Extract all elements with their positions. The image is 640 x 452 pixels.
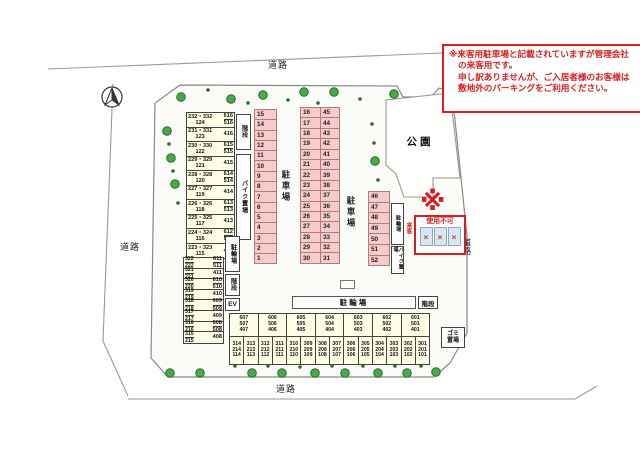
tree-icon xyxy=(432,368,441,377)
left-building-lower: 3222226115113212214113202206105103192194… xyxy=(183,257,224,344)
unit-number: 118 xyxy=(196,207,205,213)
motorbike-area-label: バイク置場 xyxy=(392,247,402,273)
tree-icon xyxy=(341,369,350,378)
site-plan: 道路 道路 道路 道路 ※来客用駐車場と記載されていますが管理会社 の来客用です… xyxy=(0,0,640,452)
unit-number: 407 xyxy=(239,328,248,334)
unit-number: 117 xyxy=(196,221,205,227)
unit-row: 230・330122615515 xyxy=(187,142,234,157)
unit-number: 406 xyxy=(268,328,277,334)
tree-icon xyxy=(196,369,205,378)
unit-number: 515 xyxy=(224,149,233,155)
unit-number: 321 xyxy=(185,267,194,274)
unit-number: 514 xyxy=(224,178,233,184)
unit-number: 119 xyxy=(196,192,205,198)
unit-number: 408 xyxy=(213,334,222,340)
bicycle-area-label: 駐輪場 xyxy=(229,244,235,264)
parking-column-c: 46474849505152 xyxy=(368,191,390,266)
unit-row: 225・325117413 xyxy=(187,215,234,230)
tree-icon xyxy=(311,369,320,378)
stairs-box-bottom: 階段 xyxy=(418,296,438,309)
visitor-side-label: 来客 xyxy=(404,222,413,234)
elevator-label: EV xyxy=(228,301,237,308)
park-label: 公園 xyxy=(398,134,442,149)
elevator-box: EV xyxy=(225,298,240,311)
unit-number: 215 xyxy=(185,338,194,344)
unit-number: 124 xyxy=(195,120,204,126)
tree-icon xyxy=(358,97,362,101)
bicycle-parking-bar: 駐輪場 xyxy=(292,296,416,309)
visitor-parking-notice: ※来客用駐車場と記載されていますが管理会社 の来客用です。 申し訳ありませんが、… xyxy=(442,44,640,113)
bicycle-area-box-right: 駐輪場 xyxy=(391,203,404,245)
unit-bay: 607507407314214114313213113 xyxy=(229,313,259,365)
unit-number: 108 xyxy=(318,353,327,359)
unit-number: 611 xyxy=(213,256,222,263)
unit-number: 402 xyxy=(382,328,391,334)
road-label-left: 道路 xyxy=(120,240,140,253)
unit-number: 315 xyxy=(185,331,194,338)
tree-icon xyxy=(166,369,175,378)
parking-space: 31 xyxy=(320,252,340,263)
unit-row: 232・332124616516 xyxy=(187,113,234,128)
unit-number: 106 xyxy=(347,353,356,359)
bottom-building: 6075074073142141143132131136065064063122… xyxy=(229,313,430,365)
parking-label-b: 駐車場 xyxy=(345,196,357,229)
parking-space: 52 xyxy=(368,255,390,267)
tree-icon xyxy=(371,157,380,166)
unit-number: 513 xyxy=(224,207,233,213)
tree-icon xyxy=(227,95,236,104)
unit-number: 102 xyxy=(404,353,413,359)
unit-number: 122 xyxy=(195,149,204,155)
tree-icon xyxy=(171,169,175,173)
unusable-space-cell: × xyxy=(420,227,433,246)
unit-number: 516 xyxy=(224,120,233,126)
tree-icon xyxy=(246,101,250,105)
unit-number: 114 xyxy=(232,353,240,359)
bicycle-area-label: 駐輪場 xyxy=(395,215,400,232)
tree-icon xyxy=(163,127,172,136)
tree-icon xyxy=(167,154,176,163)
unit-number: 104 xyxy=(375,353,384,359)
unit-number: 103 xyxy=(390,353,399,359)
unit-row: 226・326118613513 xyxy=(187,200,234,215)
parking-column-b-left: 161718192021222324252627282930 xyxy=(300,107,321,264)
stairs-label: 階段 xyxy=(240,125,246,138)
unusable-space-cell: × xyxy=(434,227,447,246)
unit-number: 112 xyxy=(261,353,269,359)
motorbike-area-label: バイク置場 xyxy=(240,180,246,214)
unit-number: 609 xyxy=(213,298,222,305)
unit-number: 316 xyxy=(185,320,194,327)
unit-number: 415 xyxy=(224,160,233,166)
unit-number: 411 xyxy=(213,270,222,276)
unit-number: 416 xyxy=(224,131,233,137)
garbage-area-box: ゴミ 置場 xyxy=(441,327,465,348)
stairs-box-mid: 階段 xyxy=(225,274,240,296)
unit-bay: 604504404308208108307207107 xyxy=(315,313,345,365)
parking-label-a: 駐車場 xyxy=(280,170,292,203)
stairs-label: 階段 xyxy=(422,298,435,308)
tree-icon xyxy=(286,98,290,102)
unit-number: 105 xyxy=(361,353,370,359)
tree-icon xyxy=(248,369,257,378)
tree-icon xyxy=(374,369,383,378)
unit-number: 509 xyxy=(213,306,222,312)
unit-number: 111 xyxy=(275,353,283,359)
unit-bay: 602502402304204104303203103 xyxy=(372,313,402,365)
unit-number: 109 xyxy=(304,353,313,359)
unusable-spaces-box: 使用不可 ××× xyxy=(414,215,466,255)
parking-space: 1 xyxy=(254,253,277,264)
tree-icon xyxy=(278,369,287,378)
unit-number: 320 xyxy=(185,277,194,284)
unit-number: 511 xyxy=(213,263,222,269)
unit-number: 113 xyxy=(247,353,255,359)
motorbike-area-box: バイク置場 xyxy=(236,154,251,240)
stairs-label: 階段 xyxy=(229,278,235,291)
stairs-box-top: 階段 xyxy=(236,114,251,150)
tree-icon xyxy=(370,122,374,126)
unit-number: 508 xyxy=(213,327,222,333)
tree-icon xyxy=(403,369,412,378)
unit-row: 231・331123416 xyxy=(187,128,234,143)
unit-number: 610 xyxy=(213,277,222,284)
unit-number: 608 xyxy=(213,320,222,327)
parking-space: 30 xyxy=(300,252,321,263)
unit-number: 403 xyxy=(354,328,363,334)
tree-icon xyxy=(316,101,320,105)
tree-icon xyxy=(176,201,180,205)
tree-icon xyxy=(390,90,399,99)
tree-icon xyxy=(206,88,210,92)
unit-number: 318 xyxy=(185,298,194,305)
road-label-bottom: 道路 xyxy=(276,382,296,395)
notice-line: の来客用です。 xyxy=(449,60,640,71)
motorbike-area-box-right: バイク置場 xyxy=(391,246,404,274)
tree-icon xyxy=(171,180,180,189)
tree-icon xyxy=(167,142,171,146)
north-arrow-icon xyxy=(102,87,122,107)
unit-number: 405 xyxy=(297,328,306,334)
unit-number: 409 xyxy=(213,313,222,319)
unit-bay: 606506406312212112311211111 xyxy=(258,313,288,365)
unit-number: 410 xyxy=(213,291,222,297)
unit-row: 227・327119414 xyxy=(187,186,234,201)
asterisk-mark: ※ xyxy=(420,188,445,214)
tree-icon xyxy=(372,141,376,145)
unit-number: 319 xyxy=(185,288,194,295)
notice-line: 申し訳ありませんが、ご入居者様のお客様は xyxy=(449,72,640,83)
tree-icon xyxy=(259,91,268,100)
unusable-title: 使用不可 xyxy=(426,217,453,226)
unit-bay: 603503403306206106305205105 xyxy=(343,313,373,365)
unit-number: 123 xyxy=(195,134,204,140)
unit-bay: 605505405310210110309209109 xyxy=(286,313,316,365)
unusable-space-cell: × xyxy=(448,227,461,246)
road-label-top: 道路 xyxy=(268,58,288,71)
unit-number: 107 xyxy=(332,353,341,359)
tree-icon xyxy=(298,365,302,369)
unit-number: 101 xyxy=(418,353,427,359)
unit-row: 229・329121415 xyxy=(187,157,234,172)
unit-number: 116 xyxy=(196,236,205,242)
unit-number: 121 xyxy=(195,163,204,169)
unit-number: 404 xyxy=(325,328,334,334)
unit-number: 322 xyxy=(185,256,194,263)
parking-column-b-right: 454443424140393837363534333231 xyxy=(320,107,340,264)
tree-icon xyxy=(177,93,186,102)
unusable-cells: ××× xyxy=(420,227,461,246)
unit-number: 613 xyxy=(224,200,233,207)
unit-number: 413 xyxy=(224,218,233,224)
notice-line: 敷地外のパーキングをご利用ください。 xyxy=(449,83,640,94)
garbage-label: 置場 xyxy=(447,338,459,345)
notice-line: ※来客用駐車場と記載されていますが管理会社 xyxy=(449,49,640,60)
garbage-label: ゴミ xyxy=(447,331,459,338)
small-structure xyxy=(340,280,355,289)
unit-number: 110 xyxy=(290,353,298,359)
unit-row: 315215408 xyxy=(184,332,223,343)
unit-number: 616 xyxy=(224,113,233,120)
unit-number: 615 xyxy=(224,142,233,149)
unit-number: 510 xyxy=(213,284,222,290)
unit-number: 401 xyxy=(411,328,420,334)
tree-icon xyxy=(376,178,380,182)
unit-number: 317 xyxy=(185,309,194,316)
tree-icon xyxy=(330,88,339,97)
unit-row: 228・328120614514 xyxy=(187,171,234,186)
tree-icon xyxy=(300,88,309,97)
unit-number: 120 xyxy=(195,178,204,184)
unit-number: 614 xyxy=(224,171,233,178)
bicycle-area-box: 駐輪場 xyxy=(225,236,240,272)
unit-number: 414 xyxy=(224,189,233,195)
parking-column-a: 151413121110987654321 xyxy=(254,109,277,264)
unit-bay: 601501401302202102301201101 xyxy=(401,313,431,365)
